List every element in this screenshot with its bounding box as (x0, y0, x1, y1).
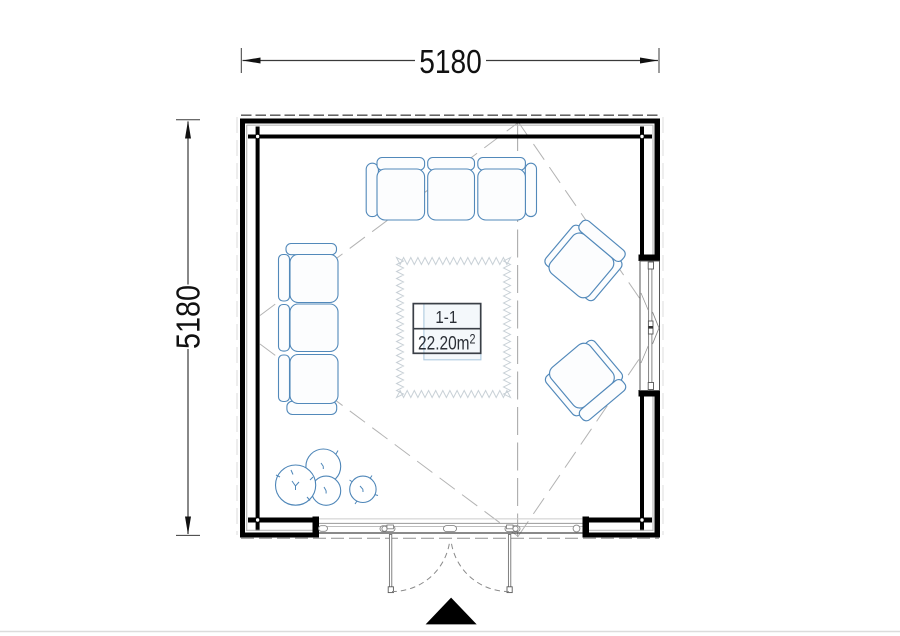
svg-text:22.20m2: 22.20m2 (418, 331, 476, 354)
svg-text:5180: 5180 (419, 43, 482, 81)
svg-text:1-1: 1-1 (435, 307, 457, 328)
svg-text:5180: 5180 (169, 285, 207, 349)
